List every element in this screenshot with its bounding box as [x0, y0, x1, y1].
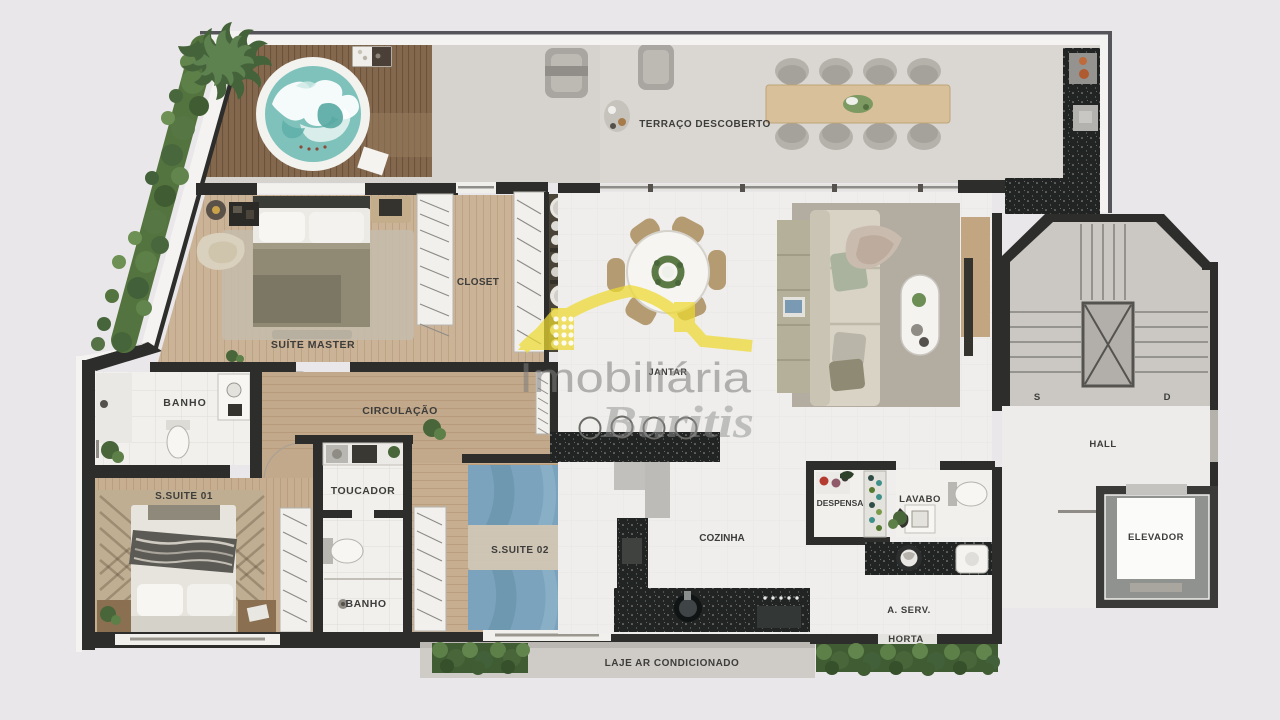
svg-text:D: D	[1164, 392, 1171, 403]
svg-text:SUÍTE MASTER: SUÍTE MASTER	[271, 338, 355, 351]
svg-text:ELEVADOR: ELEVADOR	[1128, 532, 1184, 543]
svg-text:COZINHA: COZINHA	[699, 533, 745, 544]
svg-text:BANHO: BANHO	[163, 397, 207, 409]
svg-text:LAVABO: LAVABO	[899, 494, 941, 505]
svg-text:DESPENSA: DESPENSA	[817, 498, 864, 508]
svg-text:TERRAÇO DESCOBERTO: TERRAÇO DESCOBERTO	[639, 119, 771, 130]
svg-text:S.SUITE 01: S.SUITE 01	[155, 491, 213, 502]
svg-text:BANHO: BANHO	[346, 598, 387, 610]
svg-text:CIRCULAÇÃO: CIRCULAÇÃO	[362, 404, 438, 417]
svg-text:LAJE AR CONDICIONADO: LAJE AR CONDICIONADO	[605, 658, 740, 669]
svg-text:Buritis: Buritis	[600, 396, 754, 447]
svg-text:HALL: HALL	[1089, 439, 1116, 450]
svg-text:S.SUITE 02: S.SUITE 02	[491, 545, 549, 556]
svg-text:CLOSET: CLOSET	[457, 277, 499, 288]
svg-text:TOUCADOR: TOUCADOR	[331, 485, 395, 497]
svg-text:Imobiliária: Imobiliária	[519, 354, 752, 401]
svg-text:S: S	[1034, 392, 1040, 403]
svg-text:A. SERV.: A. SERV.	[887, 605, 931, 616]
